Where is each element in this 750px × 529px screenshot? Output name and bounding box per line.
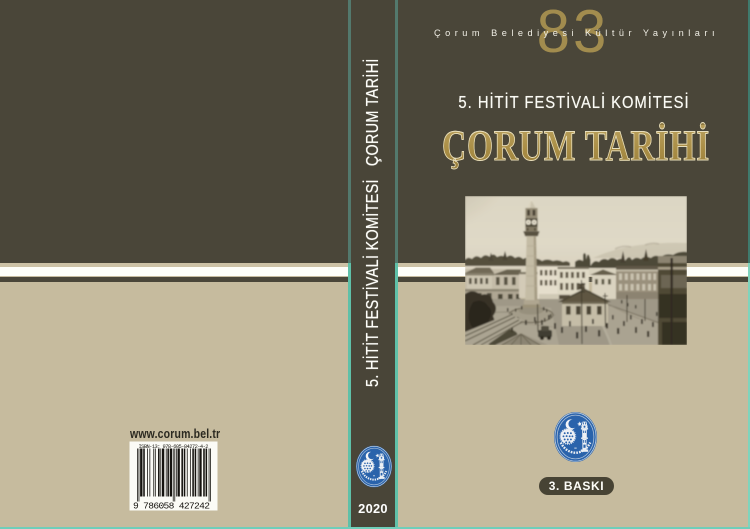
svg-text:9 786058 427242: 9 786058 427242: [133, 501, 210, 512]
